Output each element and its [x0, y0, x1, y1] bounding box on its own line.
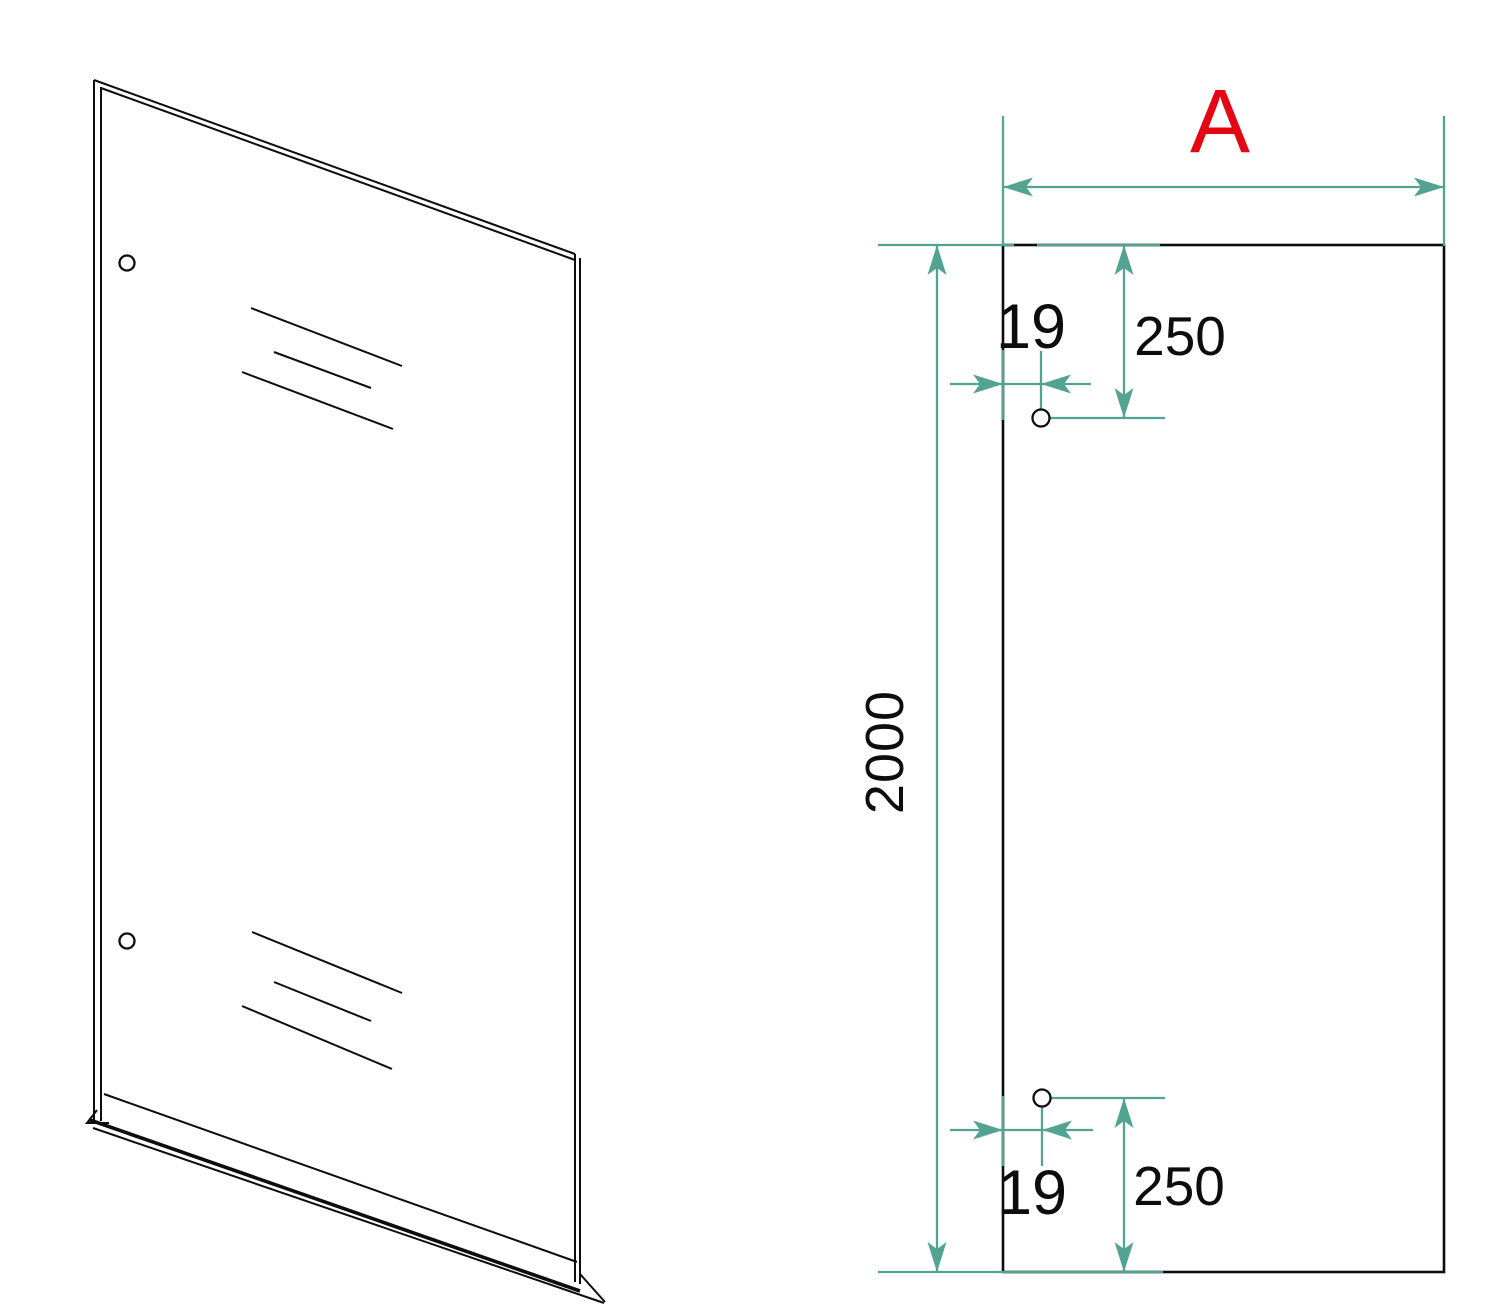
- bottom-hole-edge-offset-label: 19: [997, 1158, 1067, 1228]
- isometric-view: [87, 80, 605, 1303]
- diagram-canvas: A 2000 19 250 19 250: [0, 0, 1509, 1316]
- bottom-rail: [87, 1094, 605, 1303]
- mounting-hole-top: [120, 256, 135, 271]
- front-view: A 2000 19 250 19 250: [855, 72, 1444, 1272]
- glass-top-edge-inner: [101, 88, 575, 260]
- reflection-marks-lower: [242, 932, 402, 1069]
- reflection-line: [252, 932, 402, 993]
- reflection-line: [274, 352, 371, 388]
- mounting-hole-bottom: [1034, 1090, 1051, 1107]
- reflection-line: [251, 308, 402, 366]
- rail-top-edge: [104, 1094, 577, 1262]
- glass-panel-technical-drawing: A 2000 19 250 19 250: [0, 0, 1509, 1316]
- width-label: A: [1190, 72, 1250, 172]
- reflection-line: [274, 982, 371, 1021]
- height-label: 2000: [855, 690, 915, 814]
- reflection-marks-upper: [242, 308, 402, 429]
- rail-right-foot: [580, 1274, 605, 1302]
- bottom-hole-bottom-offset-label: 250: [1133, 1155, 1225, 1217]
- reflection-line: [242, 372, 393, 429]
- panel-outline: [1003, 245, 1444, 1272]
- rail-front-edge: [90, 1120, 580, 1291]
- mounting-hole-top: [1033, 410, 1050, 427]
- reflection-line: [242, 1006, 392, 1069]
- top-hole-edge-offset-label: 19: [996, 292, 1066, 362]
- rail-bottom-edge: [93, 1128, 604, 1303]
- top-hole-top-offset-label: 250: [1134, 305, 1226, 367]
- glass-top-edge-outer: [94, 80, 575, 254]
- mounting-hole-bottom: [120, 934, 135, 949]
